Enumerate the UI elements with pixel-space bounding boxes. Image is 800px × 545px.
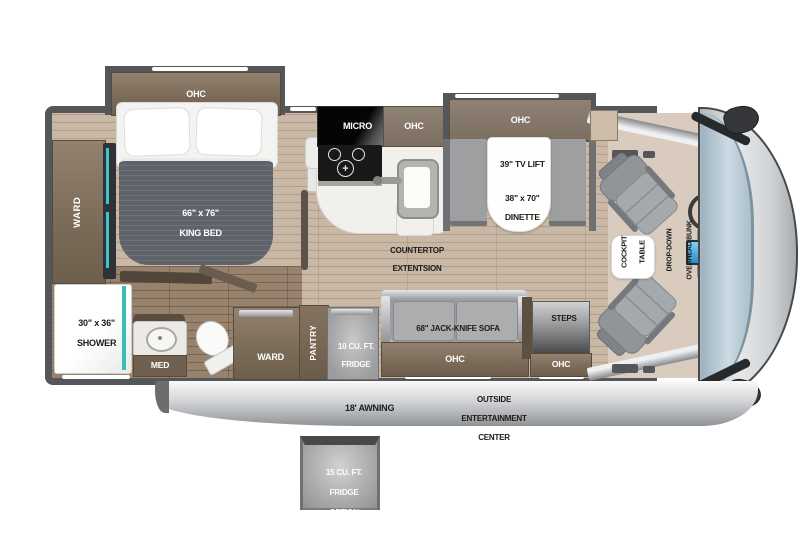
bedroom-ward-cabinet: WARD [52, 140, 106, 284]
outside-line2: ENTERTAINMENT [461, 414, 526, 423]
king-bed-label: 66" x 76" KING BED [146, 198, 246, 248]
pillow [195, 107, 263, 157]
cockpit-table-line1: COCKPIT [620, 235, 629, 267]
pillow [123, 107, 191, 157]
overhead-console-vent [612, 364, 638, 373]
fridge-trim [331, 309, 373, 315]
hall-ward-trim [239, 310, 293, 317]
med-cabinet: MED [133, 355, 187, 377]
pantry-cabinet: PANTRY [299, 305, 329, 380]
fridge-line1: 10 CU. FT. [338, 342, 374, 351]
overhead-console-vent [643, 151, 655, 158]
fridge-option-line2: FRIDGE [330, 488, 359, 497]
outside-entertainment-label: OUTSIDE ENTERTAINMENT CENTER [430, 385, 550, 452]
ward-mirror-accent [106, 212, 109, 268]
sofa-text: 68" JACK-KNIFE SOFA [416, 324, 500, 333]
fridge-label: 10 CU. FT. FRIDGE [327, 334, 377, 379]
med-label: MED [151, 361, 169, 371]
bedroom-slide-window [152, 67, 248, 71]
steps-label: STEPS [532, 306, 588, 333]
burner [352, 148, 365, 161]
faucet-knob [373, 176, 382, 185]
kitchen-ohc-cabinet: OHC [383, 106, 445, 147]
bunk-line1: DROP-DOWN [667, 229, 674, 272]
cockpit-table-label: COCKPIT TABLE [611, 235, 656, 279]
burner [328, 148, 341, 161]
dinette-slide-window [455, 94, 559, 98]
cockpit-table-line2: TABLE [638, 240, 647, 263]
burner-crosshair: + [337, 160, 354, 177]
bunk-line2: OVERHEAD BUNK [687, 220, 694, 279]
hall-ward-label: WARD [233, 342, 299, 372]
entry-top-cabinet [590, 110, 618, 141]
entry-ohc-cabinet: OHC [530, 353, 592, 377]
outside-line1: OUTSIDE [477, 395, 511, 404]
rv-floorplan: OHC 66" x 76" KING BED WARD TV OPTION 30… [0, 0, 800, 545]
overhead-console-vent [643, 366, 655, 373]
shower-size: 30" x 36" [78, 318, 115, 328]
kitchen-sink-basin [404, 167, 430, 208]
hall-ward-text: WARD [257, 352, 284, 362]
shower-name: SHOWER [77, 338, 116, 348]
countertop-line1: COUNTERTOP [390, 246, 444, 255]
outside-line3: CENTER [478, 433, 510, 442]
steps-side-wall [522, 297, 532, 359]
fridge-option-top-fold [300, 436, 380, 445]
micro-label: MICRO [343, 121, 372, 131]
kitchen-ohc-label: OHC [404, 121, 423, 131]
dinette-name: DINETTE [505, 212, 540, 222]
steps-text: STEPS [551, 314, 576, 323]
bedroom-ohc-label: OHC [186, 89, 205, 99]
bunk-option-label: DROP-DOWN OVERHEAD BUNK OPTION [656, 218, 689, 290]
entry-ohc-label: OHC [552, 360, 570, 370]
tv-lift-label: 39" TV LIFT [477, 150, 559, 179]
dinette-ohc-cabinet: OHC [449, 99, 592, 141]
sofa-ohc-cabinet: OHC [381, 342, 529, 377]
countertop-extension-label: COUNTERTOP EXTENTSION [368, 238, 458, 283]
sofa-label: 68" JACK-KNIFE SOFA [390, 316, 518, 343]
king-bed-size: 66" x 76" [182, 208, 219, 218]
dinette-ohc-label: OHC [511, 115, 530, 125]
dinette-slide-wall [443, 139, 450, 231]
shower-label: 30" x 36" SHOWER [57, 308, 127, 358]
awning-end-cap [155, 381, 169, 413]
awning-label: 18' AWNING [310, 393, 420, 423]
pantry-label: PANTRY [309, 325, 319, 361]
countertop-line2: EXTENTSION [392, 264, 441, 273]
ward-mirror-doors [103, 143, 116, 279]
fridge-option-label: 15 CU. FT. FRIDGE OPTION [300, 458, 380, 528]
sofa-frame-left [381, 296, 390, 344]
ward-mirror-accent [106, 148, 109, 204]
fridge-option-line3: OPTION [329, 508, 358, 517]
cockpit-table: COCKPIT TABLE [612, 236, 654, 278]
fridge-option-line1: 15 CU. FT. [326, 468, 362, 477]
king-bed-name: KING BED [179, 228, 221, 238]
bedroom-ward-label: WARD [74, 196, 85, 227]
awning-text: 18' AWNING [345, 403, 394, 413]
sofa-ohc-label: OHC [445, 354, 464, 364]
window-slit [290, 107, 316, 111]
vanity-sink-drain [158, 336, 162, 340]
window-slit [62, 375, 130, 379]
fridge-line2: FRIDGE [342, 360, 371, 369]
pocket-door-track [301, 190, 308, 270]
tv-lift-text: 39" TV LIFT [500, 159, 545, 169]
dinette-label: 38" x 70" DINETTE [477, 184, 559, 232]
dinette-size: 38" x 70" [505, 193, 540, 203]
vanity-sink [146, 327, 177, 352]
